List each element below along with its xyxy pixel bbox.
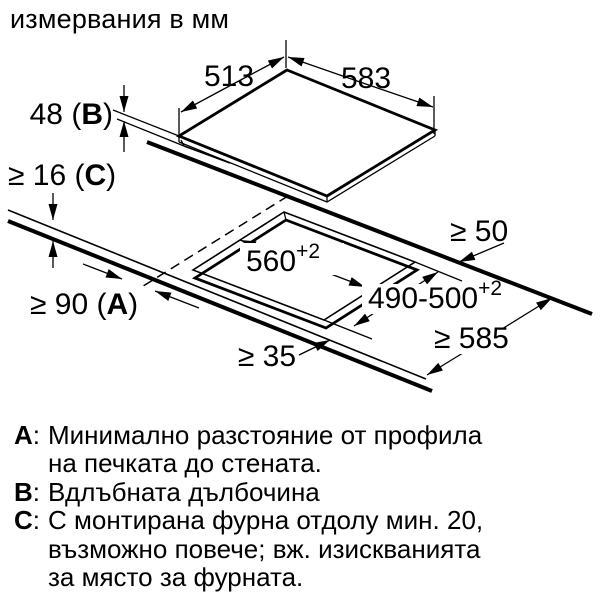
dimension-label-583: 583 <box>341 62 391 95</box>
legend-text: Минимално разстояние от профила <box>48 421 482 449</box>
legend-entry-A: A: Минимално разстояние от профила <box>14 421 483 449</box>
legend-entry-C: C: С монтирана фурна отдолу мин. 20, <box>14 506 483 534</box>
dimension-label-50: ≥ 50 <box>450 215 508 248</box>
legend-text: Вдлъбната дълбочина <box>48 478 320 506</box>
dimension-label-90-A: ≥ 90 (A) <box>30 288 138 321</box>
dimension-label-16-C: ≥ 16 (C) <box>8 159 116 192</box>
dimension-label-585: ≥ 585 <box>434 322 509 355</box>
legend: A: Минимално разстояние от профила на пе… <box>14 421 483 591</box>
legend-text: за място за фурната. <box>48 563 303 591</box>
worktop-cutout <box>193 212 462 339</box>
legend-text: на печката до стената. <box>48 449 322 477</box>
installation-diagram-page: измервания в мм <box>0 0 600 600</box>
dimension-label-35: ≥ 35 <box>238 340 296 373</box>
legend-text: възможно повече; вж. изискванията <box>48 535 480 563</box>
legend-entry-B: B: Вдлъбната дълбочина <box>14 478 483 506</box>
dimension-label-48-B: 48 (B) <box>30 98 113 131</box>
dimension-label-513: 513 <box>204 60 254 93</box>
legend-text: С монтирана фурна отдолу мин. 20, <box>48 506 483 534</box>
